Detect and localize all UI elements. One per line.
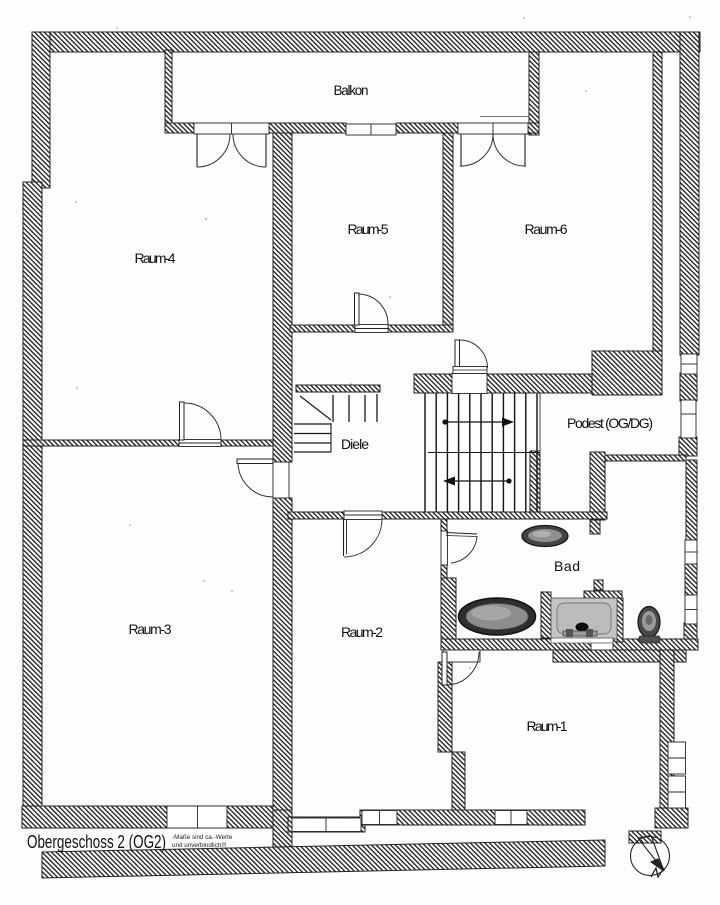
svg-text:Obergeschoss 2 (OG2): Obergeschoss 2 (OG2) bbox=[27, 831, 166, 852]
svg-text:Raum-4: Raum-4 bbox=[135, 250, 176, 266]
svg-text:-Maße sind ca.-Werte: -Maße sind ca.-Werte bbox=[172, 834, 233, 841]
svg-text:Raum-3: Raum-3 bbox=[129, 621, 172, 637]
svg-text:Balkon: Balkon bbox=[334, 83, 369, 98]
svg-text:Bad: Bad bbox=[554, 558, 580, 574]
svg-text:und unverbindlich!!!: und unverbindlich!!! bbox=[172, 842, 227, 849]
svg-text:Raum-6: Raum-6 bbox=[525, 221, 568, 237]
svg-text:Raum-1: Raum-1 bbox=[527, 718, 568, 734]
svg-text:Podest (OG/DG): Podest (OG/DG) bbox=[567, 415, 653, 431]
svg-text:Raum-2: Raum-2 bbox=[341, 624, 383, 640]
svg-text:Raum-5: Raum-5 bbox=[348, 221, 389, 237]
svg-text:Diele: Diele bbox=[341, 436, 369, 452]
